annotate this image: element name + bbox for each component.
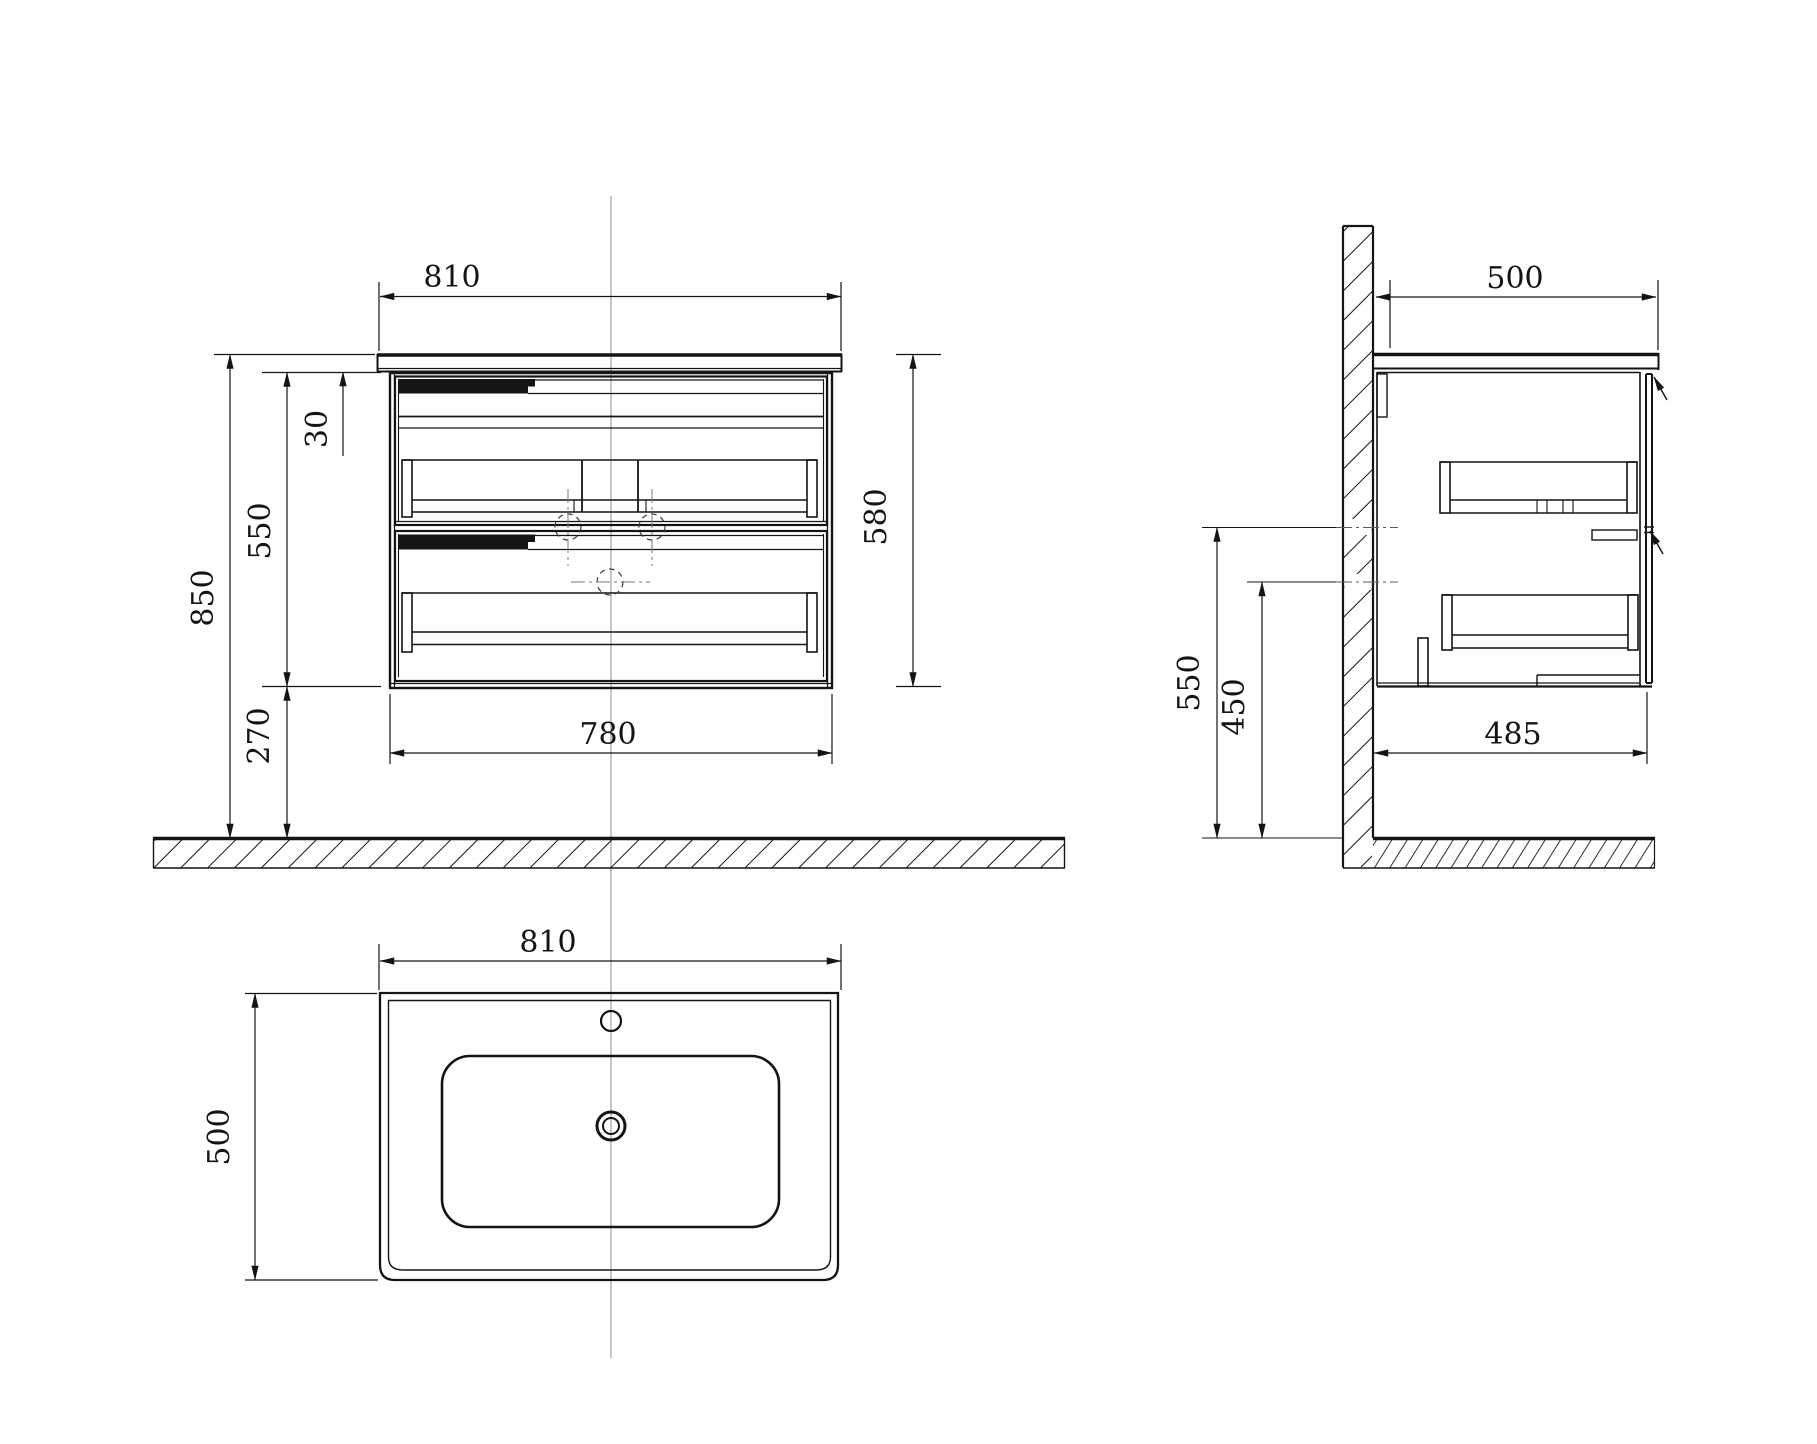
drawing-sheet: 810 850 550 30 270 780 580: [0, 0, 1817, 1444]
dim-front-top-width: 810: [423, 260, 480, 295]
front-floor: [153, 838, 1065, 868]
side-wall: [1343, 226, 1373, 868]
side-countertop: [1373, 353, 1659, 373]
front-view: 810 850 550 30 270 780 580: [153, 260, 1065, 868]
drawer-open-arrow-top: [1654, 377, 1667, 400]
top-basin-outline: [380, 993, 838, 1280]
front-drawer-bottom-handle: [398, 535, 535, 550]
vanity-drawing: 810 850 550 30 270 780 580: [0, 0, 1817, 1444]
front-countertop: [377, 354, 842, 372]
dim-front-cabinet-width: 780: [579, 717, 636, 752]
dim-side-drain-height: 450: [1217, 678, 1252, 735]
dim-side-supply-height: 550: [1172, 654, 1207, 711]
dim-front-cabinet-height: 550: [243, 502, 278, 559]
front-plumbing-marks: [555, 489, 665, 595]
dim-top-width: 810: [519, 925, 576, 960]
drawer-slide-bracket: [1592, 530, 1637, 540]
dim-top-depth: 500: [202, 1108, 237, 1165]
side-view: 500 550 450 485: [1172, 226, 1667, 868]
dim-front-floor-clearance: 270: [242, 707, 277, 764]
drain-pipe: [1418, 638, 1428, 686]
dim-front-overall-height: 850: [186, 569, 221, 626]
dim-front-height: 580: [859, 488, 894, 545]
side-cabinet: [1377, 372, 1667, 687]
dim-side-top-depth: 500: [1486, 261, 1543, 296]
top-view: 810 500: [202, 925, 841, 1280]
wall-bracket: [1377, 374, 1387, 417]
side-dimensions: 500 550 450 485: [1172, 261, 1658, 838]
side-floor: [1202, 838, 1655, 868]
front-drawer-top-handle: [398, 379, 535, 394]
dim-front-counter-thickness: 30: [300, 410, 335, 448]
dim-side-bottom-depth: 485: [1484, 717, 1541, 752]
